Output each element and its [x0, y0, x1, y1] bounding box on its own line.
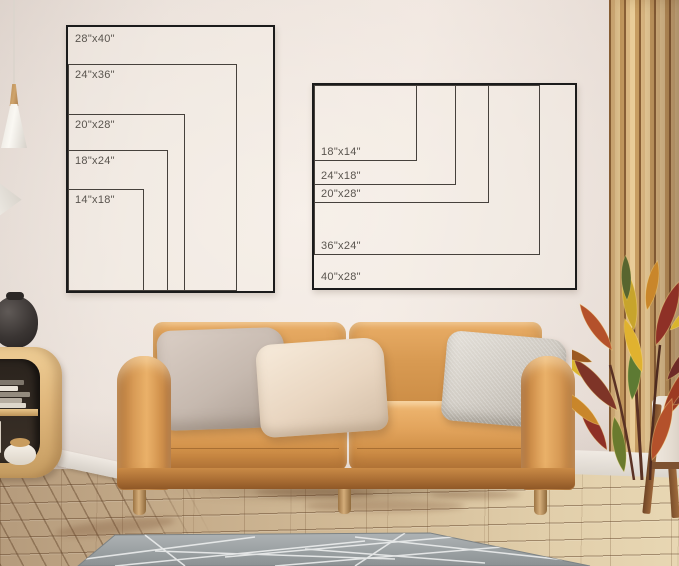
size-label-24x36: 24"x36" [75, 69, 115, 81]
geometric-rug [55, 527, 615, 566]
croton-plant [572, 150, 679, 480]
size-label-20x28-landscape: 20"x28" [321, 188, 361, 200]
book [0, 380, 24, 385]
pillow-cream [255, 337, 389, 439]
size-rect-14x18: 14"x18" [68, 189, 144, 291]
size-label-24x18: 24"x18" [321, 170, 361, 182]
size-label-18x24: 18"x24" [75, 155, 115, 167]
sofa-leg [133, 488, 146, 515]
living-room-scene: 28"x40" 24"x36" 20"x28" 18"x24" 14"x18" … [0, 0, 679, 566]
book [0, 386, 18, 391]
book [0, 398, 22, 403]
size-label-20x28: 20"x28" [75, 119, 115, 131]
size-label-18x14: 18"x14" [321, 146, 361, 158]
landscape-frame-size-chart: 40"x28" 36"x24" 20"x28" 24"x18" 18"x14" [312, 83, 577, 290]
sofa-leg [534, 488, 547, 515]
book [0, 392, 30, 397]
size-label-40x28: 40"x28" [321, 271, 361, 283]
book [0, 403, 26, 408]
portrait-frame-size-chart: 28"x40" 24"x36" 20"x28" 18"x24" 14"x18" [66, 25, 275, 293]
black-vase-lid [6, 292, 24, 300]
size-label-14x18: 14"x18" [75, 194, 115, 206]
size-rect-18x14: 18"x14" [314, 85, 417, 161]
wood-sideboard [0, 347, 62, 478]
size-label-28x40: 28"x40" [75, 33, 115, 45]
size-label-36x24: 36"x24" [321, 240, 361, 252]
sofa-base-frame [117, 468, 575, 489]
pendant-cord [13, 0, 15, 88]
sideboard-opening [0, 359, 40, 463]
sofa-leg [338, 487, 351, 514]
bowl-lid [10, 438, 30, 447]
sideboard-shelf [0, 409, 38, 416]
book [0, 421, 1, 453]
